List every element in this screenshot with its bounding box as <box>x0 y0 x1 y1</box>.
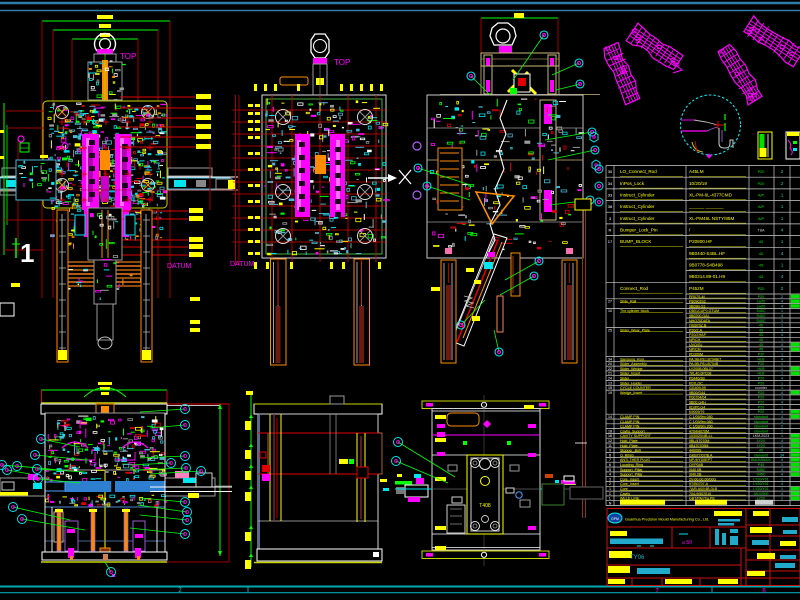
svg-text:1: 1 <box>781 367 783 371</box>
svg-text:LO_Connect_Rod: LO_Connect_Rod <box>620 169 657 174</box>
svg-text:TOP: TOP <box>334 58 350 67</box>
svg-text:1: 1 <box>781 463 783 467</box>
svg-text:N: N <box>609 502 612 506</box>
svg-text:2: 2 <box>781 295 783 299</box>
svg-text:45: 45 <box>759 328 763 332</box>
svg-text:45: 45 <box>759 240 763 244</box>
svg-text:counter: counter <box>755 386 768 390</box>
svg-text:S45C: S45C <box>757 468 766 472</box>
svg-text:6: 6 <box>609 463 611 467</box>
svg-text:XL-PM46L NSTY/85M: XL-PM46L NSTY/85M <box>689 216 734 221</box>
svg-text:4: 4 <box>781 304 783 308</box>
svg-text:18: 18 <box>608 429 612 433</box>
svg-text:45: 45 <box>759 324 763 328</box>
svg-text:LY20/Y01: LY20/Y01 <box>753 477 769 481</box>
svg-text:1: 1 <box>781 396 783 400</box>
svg-text:45: 45 <box>759 252 763 256</box>
svg-text:T408: T408 <box>479 503 491 509</box>
svg-text:34: 34 <box>780 453 784 457</box>
svg-text:5: 5 <box>609 468 611 472</box>
svg-text:NP-9/YD0EPT: NP-9/YD0EPT <box>689 458 713 462</box>
svg-text:DATUM: DATUM <box>230 261 255 268</box>
svg-text:4: 4 <box>781 482 783 486</box>
svg-text:4: 4 <box>781 333 783 337</box>
svg-text:1: 1 <box>781 405 783 409</box>
svg-text:GG409-09: GG409-09 <box>689 386 706 390</box>
svg-text:HLB: HLB <box>758 372 766 376</box>
svg-text:L: L <box>609 497 611 501</box>
svg-text:ANTI-THER PLUG: ANTI-THER PLUG <box>620 458 650 462</box>
svg-text:DB01CUP0.GTUM: DB01CUP0.GTUM <box>689 309 719 313</box>
svg-text:Instruct_Cylinder: Instruct_Cylinder <box>620 204 655 209</box>
svg-text:7KL40.0PC08: 7KL40.0PC08 <box>689 372 711 376</box>
svg-text:CLAMP PIN: CLAMP PIN <box>620 425 640 429</box>
svg-text:TOP: TOP <box>120 52 136 61</box>
svg-text:19: 19 <box>608 391 612 395</box>
svg-text:standard: standard <box>754 425 768 429</box>
svg-text:PA.9B-P8.LB704B: PA.9B-P8.LB704B <box>689 362 719 366</box>
svg-text:1: 1 <box>781 362 783 366</box>
svg-text:Instruct_Cylinder: Instruct_Cylinder <box>620 216 655 221</box>
svg-text:XL-PM-6L-4377CMD: XL-PM-6L-4377CMD <box>689 193 733 198</box>
svg-text:IYB970Z.B: IYB970Z.B <box>689 324 707 328</box>
svg-text:22: 22 <box>608 367 612 371</box>
svg-text:4: 4 <box>781 439 783 443</box>
svg-text:1: 1 <box>781 477 783 481</box>
svg-text:45: 45 <box>759 449 763 453</box>
svg-text:34: 34 <box>608 181 613 186</box>
svg-text:1: 1 <box>781 444 783 448</box>
svg-text:9: 9 <box>609 449 611 453</box>
svg-text:T8A: T8A <box>758 229 765 233</box>
svg-text:4: 4 <box>781 458 783 462</box>
svg-text:9B0778-S4B498: 9B0778-S4B498 <box>689 263 723 268</box>
svg-text:33: 33 <box>608 193 613 198</box>
svg-text:24: 24 <box>608 377 612 381</box>
svg-text:A/P: A/P <box>758 205 765 209</box>
svg-text:13: 13 <box>608 381 612 385</box>
svg-text:P20800.HF: P20800.HF <box>689 239 712 244</box>
svg-text:45: 45 <box>759 264 763 268</box>
svg-text:P20: P20 <box>758 377 764 381</box>
svg-text:Slider_Insert: Slider_Insert <box>620 372 640 376</box>
svg-text:17: 17 <box>608 239 613 244</box>
svg-text:P20: P20 <box>758 405 764 409</box>
svg-text:A45LM: A45LM <box>689 169 704 174</box>
svg-text:4: 4 <box>781 449 783 453</box>
svg-text:P452M: P452M <box>689 286 704 291</box>
svg-text:P20: P20 <box>758 410 764 414</box>
svg-text:P45: P45 <box>758 463 764 467</box>
svg-text:7: 7 <box>609 458 611 462</box>
svg-text:4: 4 <box>781 357 783 361</box>
svg-text:DATUM: DATUM <box>167 263 192 270</box>
svg-text:34: 34 <box>608 357 612 361</box>
svg-text:45: 45 <box>759 338 763 342</box>
svg-text:P20: P20 <box>758 362 764 366</box>
svg-text:Lw20: Lw20 <box>757 304 766 308</box>
svg-text:R: R <box>609 228 612 233</box>
svg-text:Stopper_Bolt: Stopper_Bolt <box>620 449 641 453</box>
svg-text:1: 1 <box>781 487 783 491</box>
svg-text:2: 2 <box>781 420 783 424</box>
svg-text:TY06: TY06 <box>630 555 645 561</box>
svg-text:Bumper_Lock_Pin: Bumper_Lock_Pin <box>620 228 658 233</box>
svg-text:1: 1 <box>781 353 783 357</box>
svg-text:Slide_Rail: Slide_Rail <box>620 300 636 304</box>
svg-text:4: 4 <box>781 343 783 347</box>
svg-text:1: 1 <box>781 324 783 328</box>
svg-text:S45C: S45C <box>757 319 766 323</box>
svg-text:______ _______: ______ _______ <box>688 204 724 209</box>
svg-text:BUMP_BLOCK: BUMP_BLOCK <box>620 239 652 244</box>
svg-text:103/020/4B-LL: 103/020/4B-LL <box>689 434 713 438</box>
svg-text:14: 14 <box>608 415 612 419</box>
svg-text:BULK/BULK: BULK/BULK <box>751 458 771 462</box>
svg-text:44009S: 44009S <box>689 449 702 453</box>
svg-text:10/20/19: 10/20/19 <box>689 181 707 186</box>
svg-text:LY20: LY20 <box>757 439 765 443</box>
svg-text:standard: standard <box>754 429 768 433</box>
svg-text:LY20/Y01: LY20/Y01 <box>753 482 769 486</box>
svg-text:1: 1 <box>20 238 34 268</box>
svg-text:P20: P20 <box>758 353 764 357</box>
svg-text:45: 45 <box>759 275 763 279</box>
svg-text:4: 4 <box>781 410 783 414</box>
svg-text:A5.0/S00: A5.0/S00 <box>754 492 769 496</box>
svg-text:27: 27 <box>608 300 612 304</box>
svg-text:C: C <box>609 492 612 496</box>
svg-text:16: 16 <box>608 434 612 438</box>
svg-text:4: 4 <box>781 300 783 304</box>
svg-text:1: 1 <box>781 381 783 385</box>
svg-text:P20: P20 <box>758 381 764 385</box>
svg-text:4: 4 <box>781 492 783 496</box>
svg-text:Instruct_Cylinder: Instruct_Cylinder <box>620 193 655 198</box>
svg-text:1: 1 <box>781 434 783 438</box>
svg-text:P20: P20 <box>758 287 765 291</box>
svg-text:S45C: S45C <box>757 309 766 313</box>
svg-text:4: 4 <box>781 314 783 318</box>
svg-text:30: 30 <box>608 169 613 174</box>
svg-text:4: 4 <box>781 415 783 419</box>
svg-text:Guanhua Precision Mould Manufa: Guanhua Precision Mould Manufacturing Co… <box>625 518 709 522</box>
svg-text:standard: standard <box>754 453 768 457</box>
svg-text:P20: P20 <box>758 295 764 299</box>
svg-text:P20: P20 <box>758 182 765 186</box>
svg-text:4: 4 <box>781 468 783 472</box>
svg-text:CYCLE COUNTER: CYCLE COUNTER <box>620 386 651 390</box>
svg-text:CAVITY SUPPORT: CAVITY SUPPORT <box>620 434 652 438</box>
svg-text:3: 3 <box>609 477 611 481</box>
svg-text:45: 45 <box>759 333 763 337</box>
svg-text:1: 1 <box>781 497 783 501</box>
svg-text:InPos_Lock: InPos_Lock <box>620 181 645 186</box>
svg-text:1: 1 <box>781 319 783 323</box>
svg-text:10: 10 <box>608 309 612 313</box>
svg-text:4: 4 <box>781 391 783 395</box>
svg-text:A/P: A/P <box>758 194 765 198</box>
svg-text:15: 15 <box>608 386 612 390</box>
svg-text:8: 8 <box>609 453 611 457</box>
svg-text:1: 1 <box>781 338 783 342</box>
svg-text:4: 4 <box>781 401 783 405</box>
svg-text:1: 1 <box>781 429 783 433</box>
svg-text:4: 4 <box>609 473 611 477</box>
svg-text:P80903S2: P80903S2 <box>689 300 706 304</box>
svg-text:The cylinder block: The cylinder block <box>620 309 649 313</box>
svg-text:2: 2 <box>781 425 783 429</box>
svg-text:45: 45 <box>759 348 763 352</box>
svg-text:P20: P20 <box>758 391 764 395</box>
svg-text:20: 20 <box>608 362 612 366</box>
svg-text:9B0314.89-01.H9: 9B0314.89-01.H9 <box>689 274 725 279</box>
svg-text:GPM: GPM <box>611 517 619 521</box>
svg-text:LY20/Y01: LY20/Y01 <box>753 487 769 491</box>
svg-text:Connect_Rod: Connect_Rod <box>620 286 649 291</box>
svg-text:⌀ 50: ⌀ 50 <box>682 540 692 546</box>
svg-text:LKM-2023: LKM-2023 <box>753 434 770 438</box>
svg-text:HLB: HLB <box>758 357 766 361</box>
svg-text:HLB: HLB <box>758 367 766 371</box>
svg-text:1: 1 <box>781 309 783 313</box>
svg-text:2: 2 <box>609 482 611 486</box>
svg-text:Lw20: Lw20 <box>757 300 766 304</box>
svg-text:4: 4 <box>781 473 783 477</box>
svg-text:A/P: A/P <box>758 217 765 221</box>
svg-text:P20: P20 <box>758 401 764 405</box>
svg-text:38: 38 <box>608 204 613 209</box>
svg-text:Slider_Assembly: Slider_Assembly <box>620 362 647 366</box>
svg-text:1: 1 <box>781 372 783 376</box>
svg-text:4: 4 <box>781 328 783 332</box>
svg-text:P20: P20 <box>758 170 765 174</box>
svg-text:S45C: S45C <box>757 473 766 477</box>
svg-text:9B0440-S4BL.HF: 9B0440-S4BL.HF <box>689 251 725 256</box>
svg-text:1: 1 <box>609 487 611 491</box>
svg-text:1: 1 <box>781 386 783 390</box>
svg-text:P20: P20 <box>758 396 764 400</box>
svg-text:11: 11 <box>608 444 612 448</box>
svg-text:21: 21 <box>608 372 612 376</box>
svg-text:standard: standard <box>754 420 768 424</box>
svg-text:4: 4 <box>781 377 783 381</box>
svg-text:25: 25 <box>608 328 612 332</box>
svg-text:C 1/09/9m 200: C 1/09/9m 200 <box>689 425 713 429</box>
svg-text:S45C: S45C <box>757 314 766 318</box>
svg-text:45: 45 <box>759 343 763 347</box>
svg-text:12: 12 <box>608 439 612 443</box>
svg-text:LY20: LY20 <box>757 444 765 448</box>
svg-text:standard: standard <box>754 415 768 419</box>
svg-text:4: 4 <box>781 348 783 352</box>
